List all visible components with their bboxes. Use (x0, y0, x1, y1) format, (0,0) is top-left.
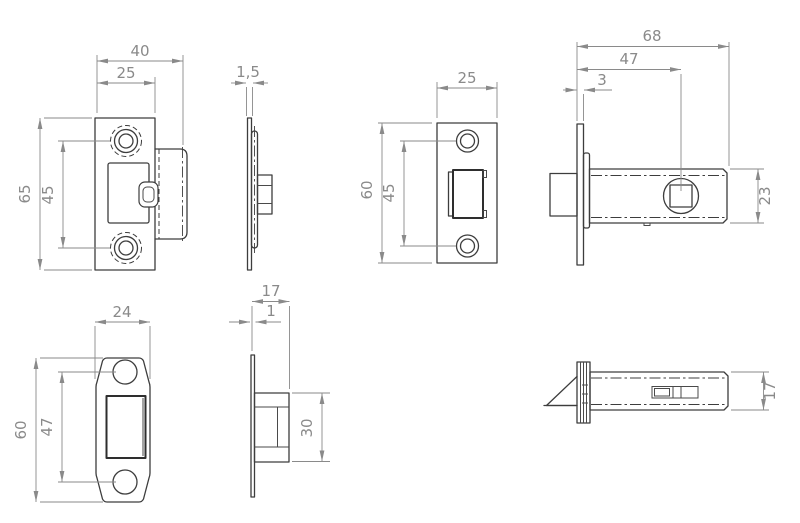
hole-inner (461, 134, 475, 148)
hole-outer (457, 235, 479, 257)
dim-plate-width-25: 25 (97, 64, 155, 113)
technical-drawing-canvas: 40 25 65 45 (0, 0, 800, 523)
dim-label: 65 (16, 184, 34, 203)
view-latch-body-top: 17 (544, 362, 779, 423)
dim-overall-width-40: 40 (97, 42, 183, 145)
dim-label: 47 (619, 50, 638, 68)
mount-bracket-edge (584, 153, 590, 228)
dim-label: 17 (261, 282, 280, 300)
dim-hole-spacing-45: 45 (39, 141, 110, 248)
view-strike-plate-front: 40 25 65 45 (16, 42, 187, 270)
dim-label: 23 (756, 186, 774, 205)
dim-box-height-30: 30 (292, 393, 330, 462)
dim-label: 17 (761, 381, 779, 400)
hole-inner (119, 134, 133, 148)
dim-hole-spacing-47: 47 (38, 372, 116, 482)
dim-body-height-23: 23 (730, 169, 774, 223)
dim-label: 25 (457, 69, 476, 87)
view-faceplate-front: 25 60 45 (358, 69, 497, 263)
dim-label: 25 (116, 64, 135, 82)
latch-bolt-wedge (547, 377, 578, 406)
latch-bolt-side (550, 174, 577, 217)
hole-inner (119, 241, 133, 255)
screw-hole-bottom (113, 470, 137, 494)
dim-backset-47: 47 (577, 50, 681, 191)
latch-bolt-face (449, 170, 487, 218)
case-notch (644, 223, 650, 226)
screw-hole-top (111, 126, 142, 157)
view-strike-plate-side: 1,5 (231, 63, 272, 270)
dim-label: 40 (130, 42, 149, 60)
dim-plate-thickness-1: 1 (229, 302, 281, 322)
hole-inner (461, 239, 475, 253)
faceplate-outline (437, 123, 497, 263)
dim-body-width-17: 17 (731, 372, 779, 410)
dim-depth-17: 17 (252, 282, 290, 389)
faceplate-edge (577, 124, 584, 265)
box-strike-outline (96, 358, 150, 502)
dim-height-60: 60 (12, 358, 103, 502)
screw-hole-top (457, 130, 479, 152)
dust-box-side (255, 393, 290, 462)
bolt-body (453, 170, 483, 218)
screw-hole-top (113, 360, 137, 384)
dim-label: 45 (39, 185, 57, 204)
dim-faceplate-offset-3: 3 (563, 71, 612, 121)
hole-outer (115, 237, 138, 260)
dim-label: 60 (358, 180, 376, 199)
view-box-strike-side: 17 1 30 (229, 282, 330, 497)
screw-hole-bottom (457, 235, 479, 257)
dim-overall-length-68: 68 (577, 27, 729, 166)
latch-tongue (139, 182, 158, 207)
dim-label: 30 (298, 418, 316, 437)
dim-label: 47 (38, 417, 56, 436)
strike-opening (107, 396, 146, 458)
screw-hole-bottom (111, 233, 142, 264)
dim-label: 1 (266, 302, 276, 320)
dim-hole-spacing-45: 45 (380, 141, 456, 246)
dim-label: 68 (642, 27, 661, 45)
dim-label: 3 (597, 71, 607, 89)
view-box-strike-front: 24 60 47 (12, 303, 150, 502)
hole-outer (457, 130, 479, 152)
dim-plate-thickness-1-5: 1,5 (231, 63, 268, 116)
latch-technical-drawing: 40 25 65 45 (0, 0, 800, 523)
hole-outer (115, 130, 138, 153)
dim-label: 24 (112, 303, 131, 321)
view-latch-body-side: 68 47 3 23 (550, 27, 774, 265)
dim-label: 60 (12, 420, 30, 439)
tongue-tab-side (258, 175, 273, 214)
dim-label: 45 (380, 183, 398, 202)
dim-label: 1,5 (236, 63, 260, 81)
dim-width-25: 25 (437, 69, 497, 118)
latch-body-outline (590, 169, 728, 223)
spring-slot-detail (652, 387, 698, 399)
dim-width-24: 24 (95, 303, 150, 379)
slot-inner (655, 389, 670, 397)
